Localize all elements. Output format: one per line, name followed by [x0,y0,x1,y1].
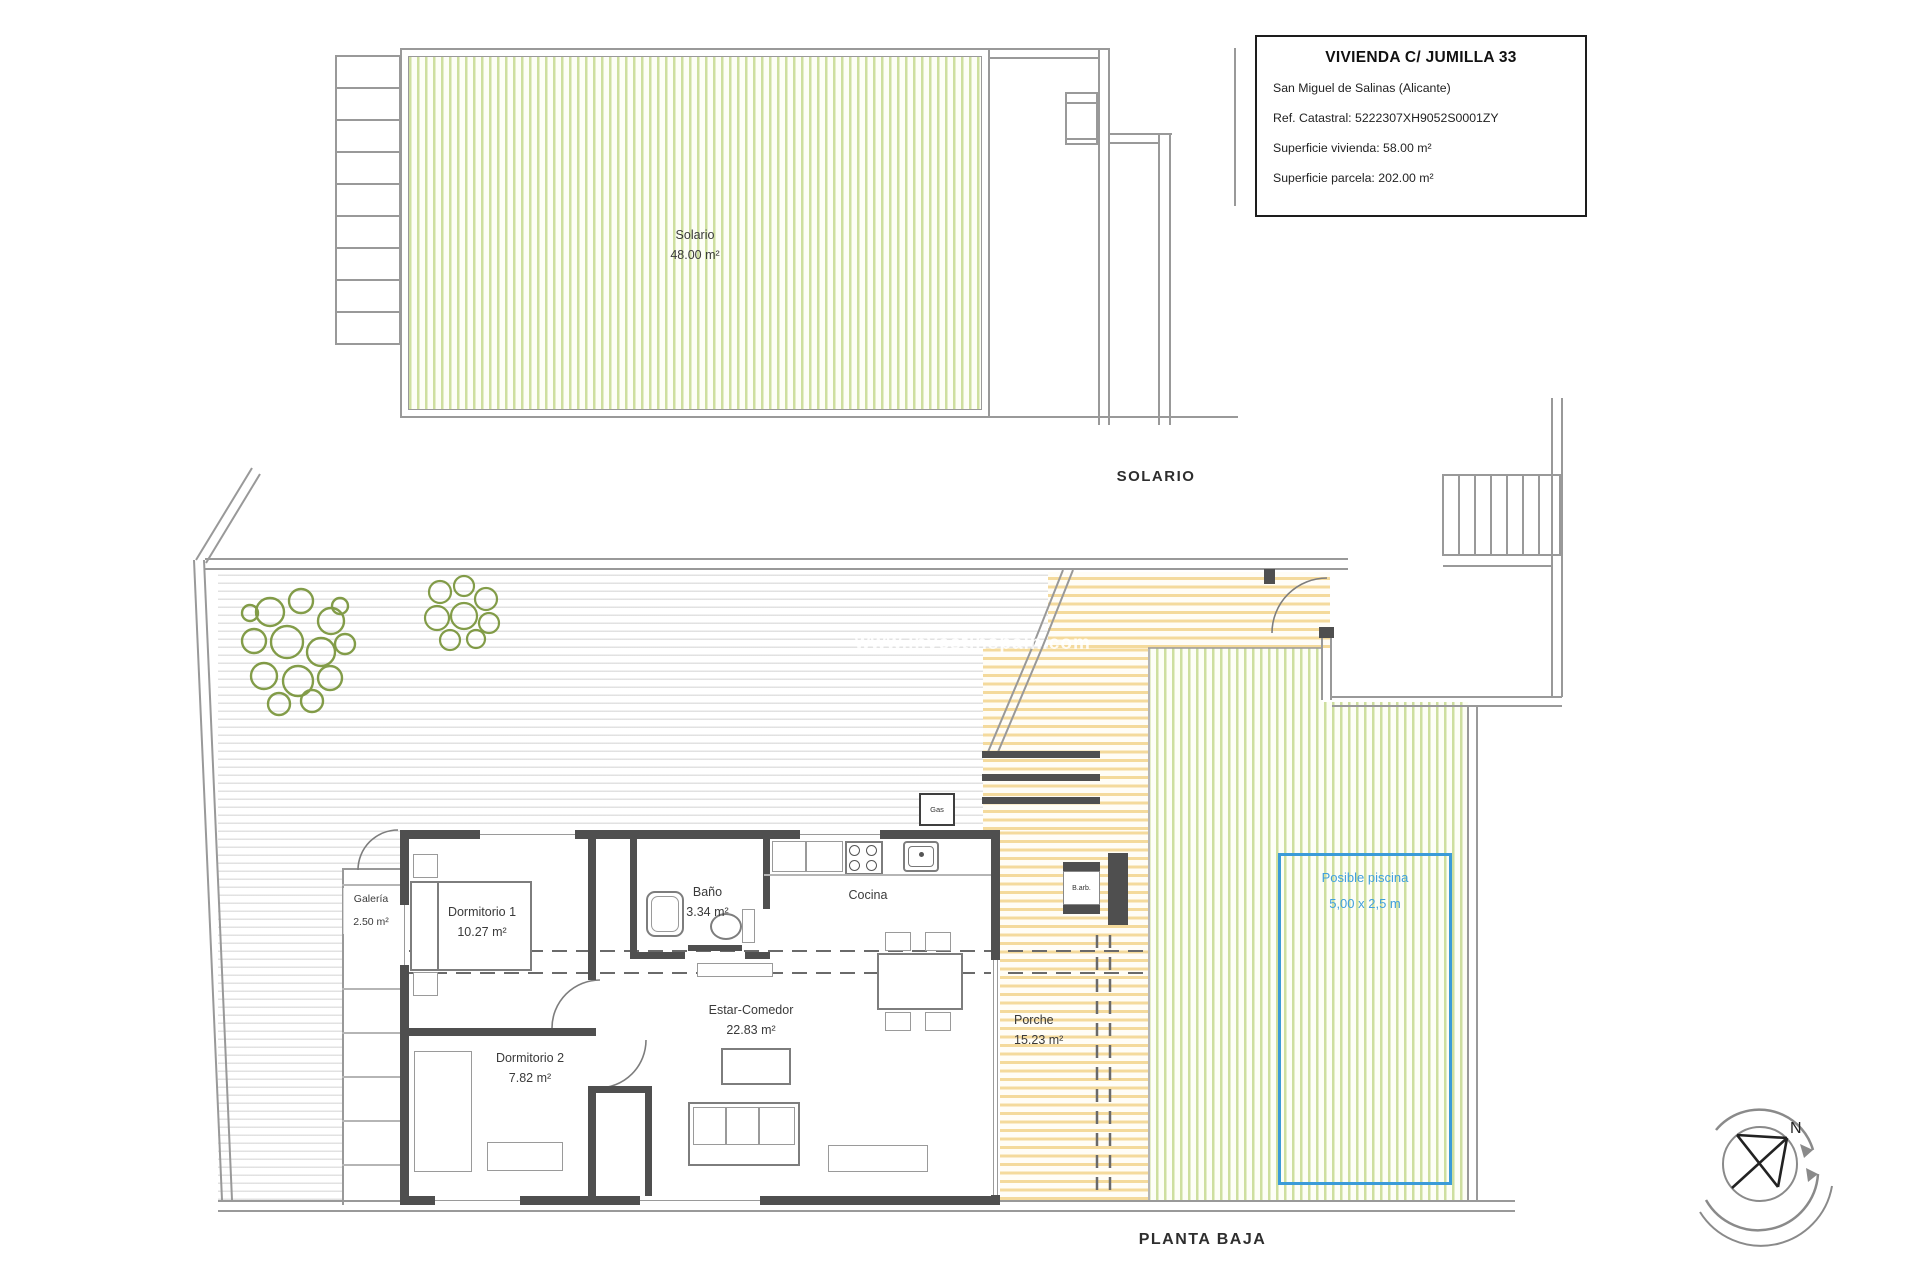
room-label-estar: Estar-Comedor 22.83 m² [670,1000,832,1040]
room-label-cocina: Cocina [818,885,918,905]
sofa-cushion [693,1107,726,1145]
entrance-door-jambs [1264,569,1334,638]
galeria-rung [342,1032,400,1034]
dining-chair [925,932,951,951]
room-name: Cocina [818,885,918,905]
pool-size: 5,00 x 2,5 m [1281,896,1449,911]
watermark: www.investinspain.com [828,633,1118,655]
kitchen-cabinet [772,841,806,872]
tv-cabinet [828,1145,928,1172]
wall-dorm1-bottom [409,1028,596,1036]
room-name: Estar-Comedor [670,1000,832,1020]
window-line [640,1200,760,1201]
wall-closet-right [645,1086,652,1196]
dining-table [877,953,963,1010]
dining-chair [885,1012,911,1031]
barbecue-wall [1063,862,1100,871]
house-wall-left [400,830,409,1205]
kitchen-cabinet [806,841,843,872]
wall-bath-bottom [745,952,770,959]
room-area: 2.50 m² [343,911,399,934]
neighbor-staircase [1443,475,1560,566]
room-name: Galería [343,888,399,911]
room-label-dormitorio2: Dormitorio 2 7.82 m² [455,1048,605,1088]
barbecue-box: B.arb. [1063,871,1100,905]
dining-chair [925,1012,951,1031]
planta-baja-caption: PLANTA BAJA [1110,1231,1295,1249]
galeria-rung [342,1164,400,1166]
window-line [997,960,998,1195]
stove-burner [866,845,877,856]
nightstand [413,972,438,996]
stove-burner [866,860,877,871]
bath-step [697,963,773,977]
sink-faucet [919,852,924,857]
possible-pool: Posible piscina 5,00 x 2,5 m [1278,853,1452,1185]
floor-plan-page: Solario 48.00 m² SOLARIO VIVIENDA C/ JUM… [0,0,1920,1280]
window-line [800,834,880,835]
room-name: Dormitorio 2 [455,1048,605,1068]
room-label-bano: Baño 3.34 m² [665,882,750,922]
galeria-rung [342,988,400,990]
sofa-cushion [759,1107,795,1145]
window-line [480,834,575,835]
stove-burner [849,860,860,871]
room-area: 15.23 m² [1014,1030,1098,1050]
compass-rose: N [1700,1110,1832,1246]
dining-chair [885,932,911,951]
compass-north-label: N [1790,1120,1802,1137]
wall-bath-left [630,839,637,959]
wall-dorm1-right [588,839,596,980]
bath-door-threshold [688,945,742,951]
galeria-rung [342,1120,400,1122]
room-name: Baño [665,882,750,902]
nightstand [413,854,438,878]
room-label-galeria: Galería 2.50 m² [343,888,399,934]
tree [425,576,499,650]
wall-bath-bottom [630,952,685,959]
room-label-porche: Porche 15.23 m² [988,1010,1098,1050]
room-label-dormitorio1: Dormitorio 1 10.27 m² [407,902,557,942]
window-line [993,960,994,1195]
gas-meter-box: Gas [919,793,955,826]
porch-step [982,774,1100,781]
coffee-table [721,1048,791,1085]
barbecue-label: B.arb. [1072,885,1091,892]
room-area: 22.83 m² [670,1020,832,1040]
stove-burner [849,845,860,856]
desk [487,1142,563,1171]
room-name: Dormitorio 1 [407,902,557,922]
barbecue-wall [1063,905,1100,914]
sofa-cushion [726,1107,759,1145]
tree [242,589,355,715]
pool-label: Posible piscina [1281,870,1449,885]
porch-pillar [1108,853,1128,925]
room-area: 7.82 m² [455,1068,605,1088]
galeria-rung [342,884,400,886]
window-line [404,905,405,965]
room-area: 3.34 m² [665,902,750,922]
gas-label: Gas [930,805,944,814]
counter-edge [764,874,991,876]
wall-dorm2-right [588,1088,596,1196]
window-line [435,1200,520,1201]
room-name: Porche [1014,1010,1098,1030]
porch-step [982,751,1100,758]
porch-step [982,797,1100,804]
room-area: 10.27 m² [407,922,557,942]
galeria-rung [342,1076,400,1078]
